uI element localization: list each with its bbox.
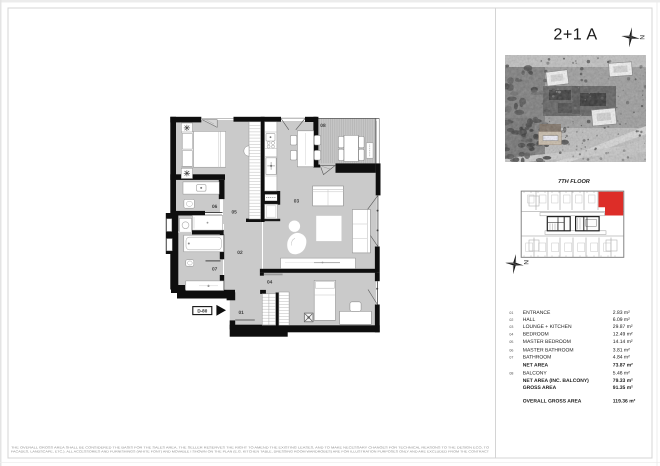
svg-text:91.35 m²: 91.35 m² xyxy=(613,385,633,391)
svg-text:N: N xyxy=(522,260,529,265)
svg-text:07: 07 xyxy=(509,356,513,360)
svg-text:NET AREA (INC. BALCONY): NET AREA (INC. BALCONY) xyxy=(523,378,589,384)
svg-text:29.87 m²: 29.87 m² xyxy=(613,324,633,330)
svg-text:12.49 m²: 12.49 m² xyxy=(613,331,633,337)
svg-text:FACADES, LANDSCAPE, ETC.). ALL: FACADES, LANDSCAPE, ETC.). ALL ACCESSORI… xyxy=(11,449,489,453)
svg-text:GROSS AREA: GROSS AREA xyxy=(523,385,557,391)
svg-text:4.84 m²: 4.84 m² xyxy=(613,355,630,361)
svg-text:119.36 m²: 119.36 m² xyxy=(613,399,636,405)
svg-text:02: 02 xyxy=(509,318,513,322)
svg-text:07: 07 xyxy=(212,266,218,272)
svg-text:BALCONY: BALCONY xyxy=(523,371,548,377)
svg-text:LOUNGE + KITCHEN: LOUNGE + KITCHEN xyxy=(523,324,572,330)
svg-text:01: 01 xyxy=(239,310,245,316)
svg-text:BATHROOM: BATHROOM xyxy=(523,355,552,361)
svg-text:2+1 A: 2+1 A xyxy=(553,26,597,44)
svg-text:01: 01 xyxy=(509,311,513,315)
svg-text:D-80: D-80 xyxy=(197,309,207,314)
svg-text:HALL: HALL xyxy=(523,317,536,323)
svg-text:79.33 m²: 79.33 m² xyxy=(613,378,633,384)
svg-text:02: 02 xyxy=(237,250,243,256)
svg-text:MASTER BATHROOM: MASTER BATHROOM xyxy=(523,347,574,353)
svg-text:6.09 m²: 6.09 m² xyxy=(613,317,630,323)
svg-text:5.46 m²: 5.46 m² xyxy=(613,371,630,377)
svg-text:04: 04 xyxy=(267,279,273,285)
svg-text:3.81 m²: 3.81 m² xyxy=(613,347,630,353)
svg-text:N: N xyxy=(638,35,645,40)
svg-text:05: 05 xyxy=(509,340,513,344)
svg-text:OVERALL GROSS AREA: OVERALL GROSS AREA xyxy=(523,399,582,405)
svg-text:08: 08 xyxy=(320,123,326,129)
svg-text:2.83 m²: 2.83 m² xyxy=(613,310,630,316)
svg-text:04: 04 xyxy=(509,332,513,336)
svg-text:08: 08 xyxy=(509,372,513,376)
svg-text:73.87 m²: 73.87 m² xyxy=(613,362,633,368)
svg-text:14.14 m²: 14.14 m² xyxy=(613,339,633,345)
svg-text:7TH FLOOR: 7TH FLOOR xyxy=(558,179,590,185)
svg-text:06: 06 xyxy=(212,204,218,210)
svg-text:NET AREA: NET AREA xyxy=(523,362,549,368)
svg-text:06: 06 xyxy=(509,348,513,352)
svg-text:BEDROOM: BEDROOM xyxy=(523,331,549,337)
svg-text:03: 03 xyxy=(509,325,513,329)
svg-text:ENTRANCE: ENTRANCE xyxy=(523,310,551,316)
svg-text:03: 03 xyxy=(294,199,300,205)
svg-text:MASTER BEDROOM: MASTER BEDROOM xyxy=(523,339,571,345)
svg-text:05: 05 xyxy=(232,210,238,216)
